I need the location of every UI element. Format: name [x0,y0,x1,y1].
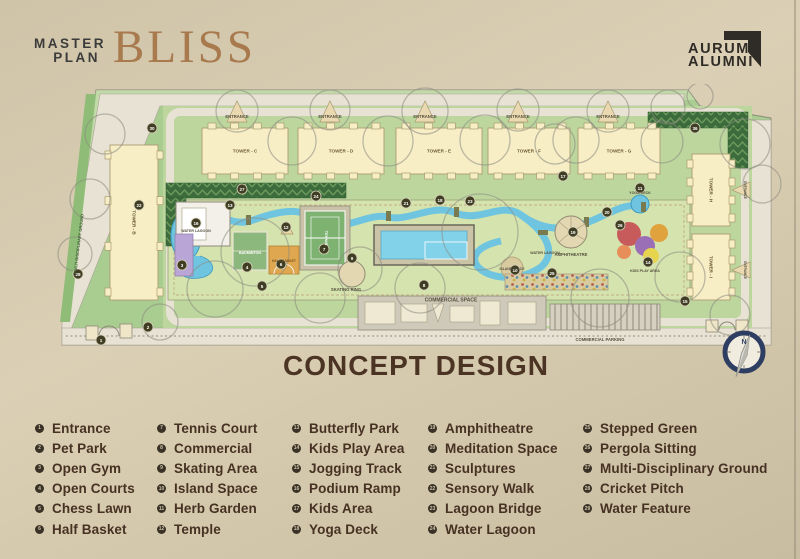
legend-item-yoga-deck: 18Yoga Deck [292,519,404,539]
legend-column: 1Entrance2Pet Park3Open Gym4Open Courts5… [35,418,135,539]
plan-marker: 26 [615,220,625,230]
legend-item-amphitheatre: 19Amphitheatre [428,418,558,438]
legend-item-label: Yoga Deck [309,522,378,537]
legend-item-skating-area: 9Skating Area [157,458,258,478]
entrance-label: ENTRANCE [743,181,747,199]
skating-ring-label: SKATING RING [331,287,361,292]
legend-item-label: Chess Lawn [52,501,132,516]
plan-marker: 12 [281,222,291,232]
legend-item-label: Cricket Pitch [600,481,684,496]
svg-text:21: 21 [403,201,409,206]
legend-number-bullet: 19 [428,424,437,433]
legend-number-bullet: 23 [428,504,437,513]
legend-item-sculptures: 21Sculptures [428,458,558,478]
legend-number-bullet: 26 [583,444,592,453]
legend-item-pet-park: 2Pet Park [35,438,135,458]
legend-item-label: Meditation Space [445,441,558,456]
tower-label: TOWER - G [607,149,632,154]
legend-column: 13Butterfly Park14Kids Play Area15Joggin… [292,418,404,539]
legend-item-label: Podium Ramp [309,481,401,496]
bliss-brand-logo: BLISS [113,22,256,72]
legend-number-bullet: 20 [428,444,437,453]
tower: TOWER - F [488,123,570,179]
page-right-edge [794,0,796,559]
plan-marker: 14 [643,257,653,267]
legend-item-lagoon-bridge: 23Lagoon Bridge [428,499,558,519]
commercial-parking-label: COMMERCIAL PARKING [576,337,625,342]
compass-icon: N [714,326,774,386]
legend-number-bullet: 11 [157,504,166,513]
legend-column: 25Stepped Green26Pergola Sitting27Multi-… [583,418,768,519]
legend-item-label: Pet Park [52,441,107,456]
svg-text:13: 13 [227,203,233,208]
svg-text:36: 36 [692,126,698,131]
master-plan-line1: MASTER [34,37,100,51]
legend-item-label: Skating Area [174,461,257,476]
svg-text:23: 23 [467,199,473,204]
tower: TOWER - B [105,145,163,300]
svg-text:24: 24 [313,194,319,199]
svg-text:1: 1 [100,338,103,343]
legend-item-water-lagoon: 24Water Lagoon [428,519,558,539]
legend-number-bullet: 5 [35,504,44,513]
plan-marker: 8 [419,280,429,290]
tennis-label: TENNIS [324,231,329,246]
legend-item-label: Amphitheatre [445,421,533,436]
commercial-space-label: COMMERCIAL SPACE [425,298,478,304]
legend-item-label: Stepped Green [600,421,697,436]
svg-text:22: 22 [136,203,142,208]
svg-text:15: 15 [682,299,688,304]
legend-number-bullet: 17 [292,504,301,513]
svg-text:7: 7 [323,247,326,252]
legend-number-bullet: 2 [35,444,44,453]
plan-marker: 25 [547,268,557,278]
plan-marker: 27 [237,184,247,194]
kids-play-label: KIDS PLAY AREA [630,269,660,273]
plan-marker: 5 [257,281,267,291]
legend-column: 19Amphitheatre20Meditation Space21Sculpt… [428,418,558,539]
plan-marker: 9 [347,253,357,263]
legend-item-commercial: 8Commercial [157,438,258,458]
svg-text:2: 2 [147,325,150,330]
legend-number-bullet: 10 [157,484,166,493]
legend-item-label: Lagoon Bridge [445,501,542,516]
legend-item-open-courts: 4Open Courts [35,479,135,499]
legend-number-bullet: 15 [292,464,301,473]
legend-item-label: Island Space [174,481,258,496]
tower-label: TOWER - B [132,210,137,235]
svg-text:26: 26 [617,223,623,228]
entrance-label: ENTRANCE [413,114,436,119]
legend-item-tennis-court: 7Tennis Court [157,418,258,438]
plan-marker: 16 [191,218,201,228]
svg-text:25: 25 [549,271,555,276]
legend-item-temple: 12Temple [157,519,258,539]
legend-item-herb-garden: 11Herb Garden [157,499,258,519]
plan-marker: 13 [225,200,235,210]
plan-marker: 22 [134,200,144,210]
island-space-label: ISLAND SPACE [500,267,526,271]
legend-number-bullet: 29 [583,504,592,513]
legend-item-butterfly-park: 13Butterfly Park [292,418,404,438]
compass-north-label: N [741,339,746,346]
svg-text:18: 18 [437,198,443,203]
legend-item-label: Sensory Walk [445,481,534,496]
legend-item-pergola-sitting: 26Pergola Sitting [583,438,768,458]
legend-item-label: Tennis Court [174,421,257,436]
legend-number-bullet: 16 [292,484,301,493]
legend-item-jogging-track: 15Jogging Track [292,458,404,478]
legend-item-chess-lawn: 5Chess Lawn [35,499,135,519]
yoga-deck-label: YOGA DECK [629,191,651,195]
svg-text:30: 30 [149,126,155,131]
legend-item-label: Entrance [52,421,111,436]
svg-text:8: 8 [423,283,426,288]
legend-number-bullet: 28 [583,484,592,493]
legend-item-label: Kids Play Area [309,441,404,456]
legend-number-bullet: 25 [583,424,592,433]
legend-number-bullet: 21 [428,464,437,473]
legend-number-bullet: 6 [35,525,44,534]
entrance-label: ENTRANCE [743,261,747,279]
svg-text:12: 12 [283,225,289,230]
legend-item-cricket-pitch: 28Cricket Pitch [583,479,768,499]
svg-text:9: 9 [351,256,354,261]
plan-marker: 1 [96,335,106,345]
tower-label: TOWER - D [329,149,354,154]
water-lagoon-label: WATER LAGOON [530,251,560,255]
tower-label: TOWER - H [709,178,714,203]
svg-text:17: 17 [560,174,566,179]
half-basket-label: HALF BASKET [272,259,297,263]
svg-text:27: 27 [239,187,245,192]
legend-item-stepped-green: 25Stepped Green [583,418,768,438]
legend-item-label: Multi-Disciplinary Ground [600,461,768,476]
legend-number-bullet: 27 [583,464,592,473]
plan-marker: 36 [690,123,700,133]
plan-marker: 2 [143,322,153,332]
legend-item-label: Butterfly Park [309,421,399,436]
concept-design-title: CONCEPT DESIGN [283,350,549,382]
legend-number-bullet: 8 [157,444,166,453]
svg-text:20: 20 [604,210,610,215]
plan-marker: 23 [465,196,475,206]
legend-item-label: Herb Garden [174,501,257,516]
aurum-bracket-icon [720,31,762,69]
plan-marker: 3 [177,260,187,270]
legend-number-bullet: 3 [35,464,44,473]
legend-item-label: Pergola Sitting [600,441,697,456]
legend-item-kids-play-area: 14Kids Play Area [292,438,404,458]
entrance-label: ENTRANCE [596,114,619,119]
badminton-label: BADMINTON [239,251,261,255]
plan-marker: 20 [602,207,612,217]
plan-marker: 30 [147,123,157,133]
svg-text:16: 16 [193,221,199,226]
legend-number-bullet: 1 [35,424,44,433]
legend-item-label: Water Lagoon [445,522,536,537]
entrance-label: ENTRANCE [225,114,248,119]
legend-item-water-feature: 29Water Feature [583,499,768,519]
legend-column: 7Tennis Court8Commercial9Skating Area10I… [157,418,258,539]
legend-number-bullet: 24 [428,525,437,534]
tower: TOWER - E [396,123,482,179]
legend-item-label: Commercial [174,441,252,456]
svg-text:4: 4 [246,265,249,270]
legend-item-sensory-walk: 22Sensory Walk [428,479,558,499]
plan-marker: 19 [568,227,578,237]
legend-number-bullet: 14 [292,444,301,453]
legend-item-label: Open Gym [52,461,121,476]
legend-item-multi-disciplinary-ground: 27Multi-Disciplinary Ground [583,458,768,478]
tower: TOWER - G [578,123,660,179]
plan-marker: 7 [319,244,329,254]
legend-item-podium-ramp: 16Podium Ramp [292,479,404,499]
legend-number-bullet: 22 [428,484,437,493]
tower-label: TOWER - I [709,256,714,278]
legend-item-label: Water Feature [600,501,691,516]
legend-number-bullet: 7 [157,424,166,433]
plan-marker: 24 [311,191,321,201]
plan-marker: 21 [401,198,411,208]
legend-item-kids-area: 17Kids Area [292,499,404,519]
legend-number-bullet: 13 [292,424,301,433]
tower-label: TOWER - C [233,149,258,154]
legend-item-label: Open Courts [52,481,135,496]
tower: TOWER - I [687,234,735,300]
legend-number-bullet: 12 [157,525,166,534]
water-lagoon-label: WATER LAGOON [181,229,211,233]
entrance-label: ENTRANCE [506,114,529,119]
legend-item-label: Half Basket [52,522,127,537]
plan-marker: 4 [242,262,252,272]
legend-item-island-space: 10Island Space [157,479,258,499]
tower: TOWER - D [298,123,384,179]
legend-number-bullet: 4 [35,484,44,493]
svg-text:19: 19 [570,230,576,235]
legend-item-meditation-space: 20Meditation Space [428,438,558,458]
plan-marker: 15 [680,296,690,306]
legend-item-label: Temple [174,522,221,537]
tower-label: TOWER - E [427,149,451,154]
legend-item-half-basket: 6Half Basket [35,519,135,539]
tower: TOWER - C [202,123,288,179]
legend-number-bullet: 18 [292,525,301,534]
legend-number-bullet: 9 [157,464,166,473]
tower: TOWER - H [687,154,735,226]
master-plan-map[interactable]: TOWER - BTOWER - CTOWER - DTOWER - ETOWE… [0,84,800,352]
plan-marker: 18 [435,195,445,205]
svg-text:5: 5 [261,284,264,289]
legend-item-label: Sculptures [445,461,516,476]
legend-item-label: Jogging Track [309,461,402,476]
master-plan-title: MASTER PLAN [34,37,100,65]
legend-item-label: Kids Area [309,501,372,516]
legend-item-open-gym: 3Open Gym [35,458,135,478]
master-plan-line2: PLAN [34,51,100,65]
legend-item-entrance: 1Entrance [35,418,135,438]
svg-text:14: 14 [645,260,651,265]
entrance-label: ENTRANCE [318,114,341,119]
plan-marker: 17 [558,171,568,181]
svg-text:3: 3 [181,263,184,268]
